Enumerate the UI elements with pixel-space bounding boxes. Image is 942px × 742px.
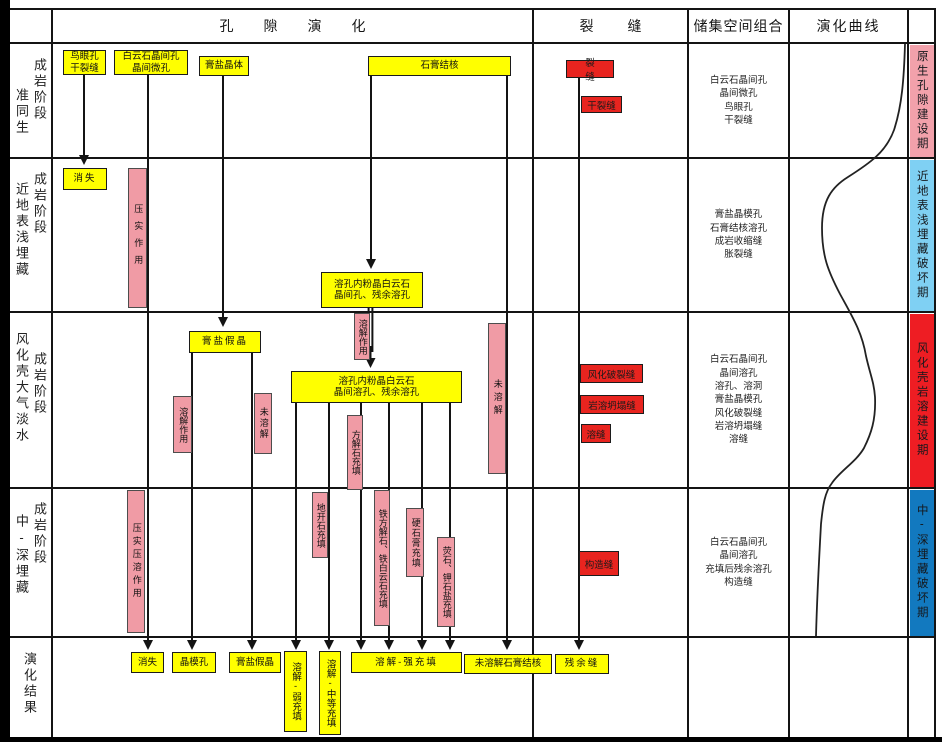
box-undissolved-right: 未溶解 — [488, 323, 506, 474]
period-primary-pore-construction: 原生孔隙建设期 — [910, 45, 935, 157]
box-result-disappear: 消失 — [131, 652, 164, 673]
box-undissolved-left: 未溶解 — [254, 393, 272, 454]
box-compaction: 压实作用 — [128, 168, 147, 308]
box-result-gypsum-pseudomorph: 膏盐假晶 — [229, 652, 281, 673]
stage-1-suffix: 成岩阶段 — [30, 58, 49, 122]
period-row3-label: 风化壳岩溶建设期 — [914, 342, 930, 458]
evolution-curve — [816, 44, 905, 636]
space-combination-row4: 白云石晶间孔 晶间溶孔 充填后残余溶孔 构造缝 — [688, 488, 789, 637]
box-dissolution-mid: 溶解作用 — [354, 313, 370, 360]
diagenesis-pore-evolution-diagram: 孔隙演化 裂缝 储集空间组合 演化曲线 准同生 成岩阶段 近地表浅埋藏 成岩阶段… — [0, 0, 942, 742]
box-gypsum-pseudomorph-row3: 膏盐假晶 — [189, 331, 261, 353]
box-desiccation-fracture: 干裂缝 — [581, 96, 622, 113]
box-dissolution-row3: 溶解作用 — [173, 396, 192, 453]
box-result-residual-fracture: 残余缝 — [555, 654, 609, 674]
box-tectonic-fracture: 构造缝 — [579, 551, 619, 576]
period-row2-label: 近地表浅埋藏破坏期 — [914, 170, 930, 301]
period-row4-label: 中-深埋藏破坏期 — [914, 504, 930, 621]
period-weathering-karst-construction: 风化壳岩溶建设期 — [910, 314, 935, 487]
box-compaction-pressure-solution: 压实压溶作用 — [127, 490, 145, 633]
box-bird-eye-pores: 鸟眼孔 干裂缝 — [63, 50, 106, 75]
stage-4-suffix: 成岩阶段 — [30, 502, 49, 566]
box-result-dissolution-strong-fill: 溶解-强充填 — [351, 652, 462, 673]
box-anhydrite-fill: 硬石膏充填 — [406, 508, 424, 577]
stage-4-name: 中-深埋藏 — [12, 514, 31, 596]
box-result-dissolution-weak-fill: 溶解-弱充填 — [284, 651, 307, 732]
period-row1-label: 原生孔隙建设期 — [914, 50, 930, 152]
box-result-dissolution-medium-fill: 溶解-中等充填 — [319, 651, 341, 735]
stage-2-name: 近地表浅埋藏 — [12, 182, 31, 278]
period-mid-deep-burial-destruction: 中-深埋藏破坏期 — [910, 490, 935, 636]
space-combination-row3: 白云石晶间孔 晶间溶孔 溶孔、溶洞 膏盐晶模孔 风化破裂缝 岩溶坍塌缝 溶缝 — [688, 312, 789, 488]
left-border-bar — [0, 0, 10, 742]
period-near-surface-destruction: 近地表浅埋藏破坏期 — [910, 160, 935, 311]
box-dissolution-fracture: 溶缝 — [581, 424, 611, 443]
space-combination-row1: 白云石晶间孔 晶间微孔 鸟眼孔 干裂缝 — [688, 43, 789, 158]
stage-1-name: 准同生 — [12, 88, 31, 136]
box-dissolved-pore-row3: 溶孔内粉晶白云石 晶间溶孔、残余溶孔 — [291, 371, 462, 403]
stage-3-name: 风化壳大气淡水 — [12, 332, 31, 444]
box-fluorite-sylvite-fill: 荧石、钾石盐充填 — [437, 537, 455, 627]
stage-3-suffix: 成岩阶段 — [30, 352, 49, 416]
box-result-crystal-mold-pore: 晶模孔 — [172, 652, 216, 673]
stage-2-suffix: 成岩阶段 — [30, 172, 49, 236]
box-karst-collapse-fracture: 岩溶坍塌缝 — [580, 395, 644, 414]
box-gypsum-nodule: 石膏结核 — [368, 56, 511, 76]
box-dickite-fill: 地开石充填 — [312, 492, 328, 558]
stage-5-name: 演化结果 — [20, 652, 39, 716]
box-disappear-row2: 消失 — [63, 168, 107, 190]
space-combination-row2: 膏盐晶模孔 石膏结核溶孔 成岩收缩缝 胀裂缝 — [688, 158, 789, 312]
box-fe-calcite-fe-dolomite-fill: 铁方解石、铁白云石充填 — [374, 490, 390, 626]
box-fracture: 裂缝 — [566, 60, 614, 78]
box-dolomite-intercrystal-pores: 白云石晶间孔 晶间微孔 — [114, 50, 188, 75]
box-weathering-fracture: 风化破裂缝 — [580, 364, 643, 383]
bottom-border-bar — [0, 737, 942, 742]
box-result-undissolved-gypsum-nodule: 未溶解石膏结核 — [464, 654, 552, 674]
box-gypsum-salt-crystal: 膏盐晶体 — [199, 56, 249, 76]
box-dissolved-pore-row2: 溶孔内粉晶白云石 晶间孔、残余溶孔 — [321, 272, 423, 308]
box-calcite-fill: 方解石充填 — [347, 415, 363, 490]
